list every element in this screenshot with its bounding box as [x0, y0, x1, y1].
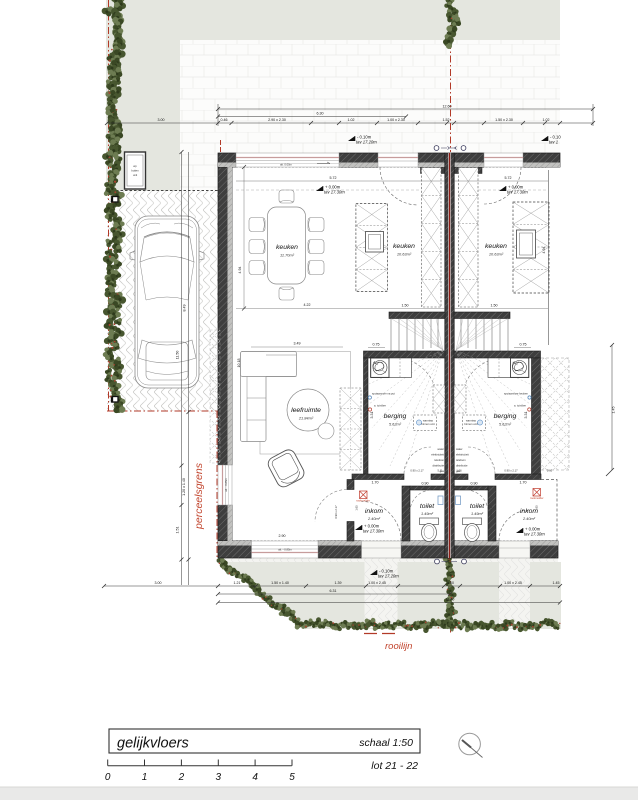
svg-text:10.18: 10.18 — [237, 359, 241, 368]
svg-text:4.94: 4.94 — [238, 267, 242, 274]
svg-text:3.31: 3.31 — [370, 412, 374, 419]
svg-text:alt. - 0.85m: alt. - 0.85m — [278, 548, 292, 552]
svg-text:2.40m²: 2.40m² — [367, 516, 381, 521]
svg-text:10.63m²: 10.63m² — [397, 252, 412, 257]
svg-text:keuken: keuken — [485, 243, 507, 250]
svg-text:21.84m²: 21.84m² — [298, 416, 314, 421]
svg-text:distributie: distributie — [456, 464, 468, 468]
svg-text:0.80 x 2.17: 0.80 x 2.17 — [404, 505, 408, 519]
svg-text:8.49: 8.49 — [183, 305, 187, 312]
svg-text:elektriciteit: elektriciteit — [456, 453, 469, 457]
svg-text:0.75: 0.75 — [520, 343, 527, 347]
svg-text:perceelsgrens: perceelsgrens — [193, 462, 205, 530]
svg-text:1.65: 1.65 — [355, 505, 359, 511]
svg-text:4: 4 — [252, 772, 258, 783]
svg-text:3.31: 3.31 — [524, 412, 528, 419]
svg-text:2.40m²: 2.40m² — [522, 516, 536, 521]
svg-text:5: 5 — [289, 772, 295, 783]
svg-text:1.51: 1.51 — [176, 527, 180, 534]
svg-text:telefoon: telefoon — [434, 458, 444, 462]
svg-text:1.45: 1.45 — [553, 581, 560, 585]
svg-text:1.50 x 1.40: 1.50 x 1.40 — [271, 581, 289, 585]
svg-text:1.21: 1.21 — [234, 581, 241, 585]
svg-text:10.63m²: 10.63m² — [489, 252, 504, 257]
svg-text:1: 1 — [142, 772, 148, 783]
svg-text:alt. - 0.85m: alt. - 0.85m — [224, 478, 228, 492]
svg-text:gas: gas — [456, 470, 461, 473]
svg-text:a. tuin/ber: a. tuin/ber — [514, 404, 526, 408]
svg-text:0.90: 0.90 — [422, 482, 429, 486]
svg-text:rooilijn: rooilijn — [385, 641, 412, 652]
svg-text:5.72: 5.72 — [330, 176, 337, 180]
svg-text:warmtep: warmtep — [466, 419, 477, 423]
svg-text:1.20 x 1.40: 1.20 x 1.40 — [182, 478, 186, 496]
svg-text:4.94: 4.94 — [542, 247, 546, 254]
svg-text:1.52: 1.52 — [443, 118, 450, 122]
svg-text:3.00: 3.00 — [158, 118, 165, 122]
svg-text:buiten: buiten — [131, 169, 139, 173]
svg-text:alt. 0.00m: alt. 0.00m — [280, 163, 293, 167]
svg-text:warmtep: warmtep — [423, 419, 434, 423]
svg-text:tav 17.20m: tav 17.20m — [356, 140, 377, 145]
svg-text:5.62m²: 5.62m² — [389, 422, 402, 427]
svg-text:2.90 x 2.30: 2.90 x 2.30 — [268, 118, 286, 122]
svg-text:inkom: inkom — [365, 508, 383, 515]
svg-text:1.70: 1.70 — [372, 481, 379, 485]
svg-text:schaal 1:50: schaal 1:50 — [359, 737, 413, 749]
svg-text:tav 17.20m: tav 17.20m — [378, 574, 399, 579]
svg-text:tav 17.30m: tav 17.30m — [324, 190, 345, 195]
svg-text:a. tuin/ber: a. tuin/ber — [374, 404, 386, 408]
svg-text:0: 0 — [105, 772, 111, 783]
svg-text:tav 17.30m: tav 17.30m — [363, 529, 384, 534]
svg-text:5.72: 5.72 — [505, 176, 512, 180]
svg-text:1.49m²: 1.49m² — [471, 511, 484, 516]
svg-text:11.50: 11.50 — [176, 351, 180, 360]
svg-text:1.00 x 2.45: 1.00 x 2.45 — [504, 581, 522, 585]
svg-text:wp: wp — [133, 165, 137, 168]
svg-text:1.45: 1.45 — [612, 407, 616, 414]
svg-text:water: water — [437, 447, 444, 451]
svg-text:spuiaanvoer keuken: spuiaanvoer keuken — [504, 392, 529, 396]
svg-text:rookmelder: rookmelder — [356, 499, 370, 503]
svg-text:tav 17.30m: tav 17.30m — [507, 190, 528, 195]
svg-text:toilet: toilet — [470, 503, 485, 510]
svg-text:leefruimte: leefruimte — [291, 407, 321, 414]
svg-text:1.00 x 2.45: 1.00 x 2.45 — [368, 581, 386, 585]
svg-text:0.46: 0.46 — [221, 118, 228, 122]
svg-text:toilet: toilet — [420, 503, 435, 510]
svg-text:keuken: keuken — [276, 244, 298, 251]
svg-text:gelijkvloers: gelijkvloers — [117, 736, 189, 752]
svg-text:6.31: 6.31 — [330, 589, 337, 593]
svg-text:unit: unit — [133, 173, 138, 177]
svg-text:0.90 x 2.17: 0.90 x 2.17 — [504, 469, 518, 473]
svg-text:2.90: 2.90 — [279, 534, 286, 538]
svg-text:3.00: 3.00 — [155, 581, 162, 585]
svg-text:0.75: 0.75 — [373, 343, 380, 347]
svg-text:11.40: 11.40 — [446, 598, 455, 602]
svg-text:1.49m²: 1.49m² — [421, 511, 434, 516]
svg-text:keuken: keuken — [393, 243, 415, 250]
svg-text:1.50: 1.50 — [491, 304, 498, 308]
svg-text:rookmelder: rookmelder — [530, 496, 544, 500]
svg-text:5.62m²: 5.62m² — [499, 422, 512, 427]
svg-text:telefoon: telefoon — [456, 458, 466, 462]
svg-text:berging: berging — [494, 413, 517, 420]
svg-text:gas: gas — [440, 470, 445, 473]
svg-text:tav 1: tav 1 — [549, 140, 558, 145]
svg-text:inkom: inkom — [520, 508, 538, 515]
svg-text:water: water — [456, 447, 463, 451]
svg-text:1.60: 1.60 — [447, 581, 454, 585]
svg-text:berging: berging — [384, 413, 407, 420]
svg-text:1.70: 1.70 — [520, 481, 527, 485]
svg-text:0.90 x 2.17: 0.90 x 2.17 — [410, 469, 424, 473]
svg-text:1.02: 1.02 — [543, 118, 550, 122]
svg-text:3: 3 — [216, 772, 222, 783]
svg-text:12.60: 12.60 — [443, 105, 452, 109]
svg-text:0.60: 0.60 — [547, 469, 553, 473]
svg-text:11.70m²: 11.70m² — [280, 253, 295, 258]
svg-text:0.80 x 2.17: 0.80 x 2.17 — [489, 505, 493, 519]
svg-text:1.39: 1.39 — [335, 581, 342, 585]
svg-text:1.00 x 2.30: 1.00 x 2.30 — [387, 118, 405, 122]
svg-text:distributie: distributie — [432, 464, 444, 468]
svg-text:1.50: 1.50 — [402, 304, 409, 308]
svg-text:tav 17.30m: tav 17.30m — [524, 532, 545, 537]
svg-text:binnen unit: binnen unit — [464, 422, 477, 426]
svg-text:spuiaanvoer na put: spuiaanvoer na put — [372, 392, 395, 396]
svg-text:lot 21 - 22: lot 21 - 22 — [371, 760, 418, 772]
svg-text:1.02: 1.02 — [348, 118, 355, 122]
svg-text:elektriciteit: elektriciteit — [431, 453, 444, 457]
svg-text:4.22: 4.22 — [304, 303, 311, 307]
svg-text:1.50 x 2.30: 1.50 x 2.30 — [495, 118, 513, 122]
svg-text:binnen unit: binnen unit — [421, 422, 434, 426]
svg-text:3.49: 3.49 — [294, 342, 301, 346]
svg-text:2: 2 — [178, 772, 185, 783]
svg-text:0.90 x 2.17: 0.90 x 2.17 — [334, 505, 338, 519]
svg-text:6.30: 6.30 — [317, 112, 324, 116]
svg-text:0.90: 0.90 — [471, 482, 478, 486]
